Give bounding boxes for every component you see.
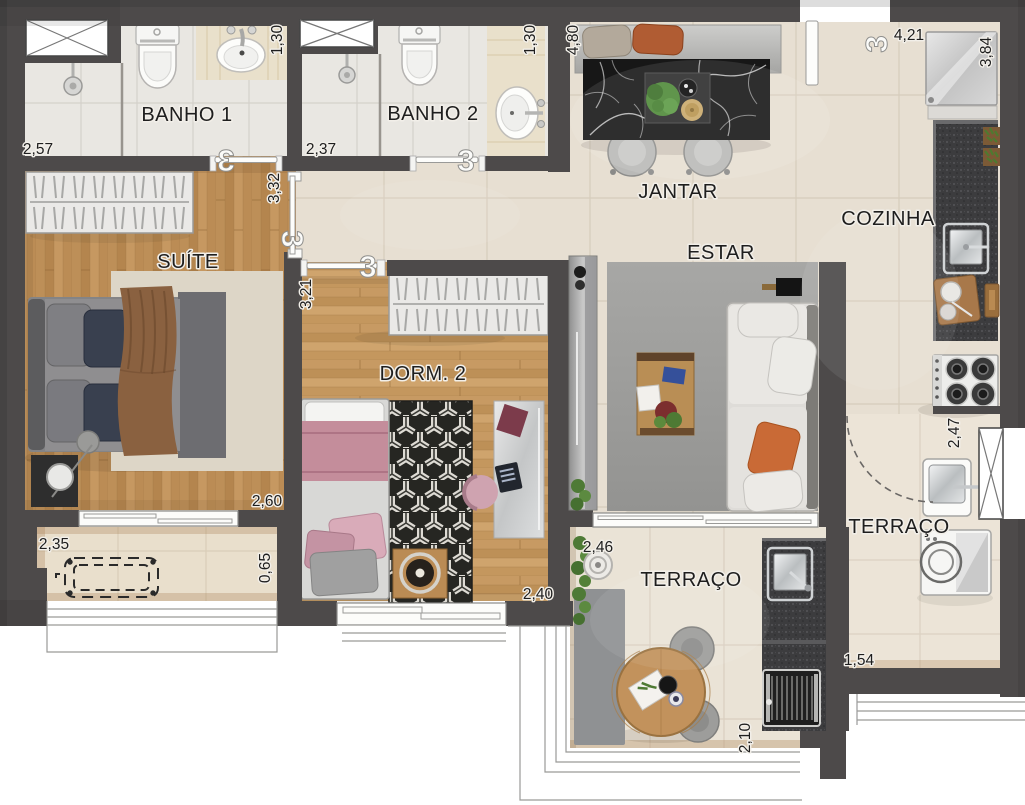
svg-text:SUÍTE: SUÍTE: [157, 250, 218, 273]
svg-text:2,46: 2,46: [583, 539, 613, 556]
svg-text:TERRAÇO: TERRAÇO: [640, 569, 741, 591]
svg-text:1,54: 1,54: [844, 652, 875, 669]
svg-text:4,80: 4,80: [565, 25, 582, 56]
svg-text:1,30: 1,30: [522, 25, 539, 56]
svg-text:TERRAÇO: TERRAÇO: [848, 516, 949, 538]
svg-text:2,47: 2,47: [946, 418, 963, 448]
svg-text:2,10: 2,10: [737, 723, 754, 754]
svg-text:JANTAR: JANTAR: [638, 181, 717, 203]
svg-text:0,65: 0,65: [257, 553, 274, 583]
svg-text:1,30: 1,30: [269, 25, 286, 56]
svg-text:2,60: 2,60: [252, 493, 283, 510]
svg-text:DORM. 2: DORM. 2: [380, 363, 467, 385]
svg-text:3,84: 3,84: [978, 37, 995, 68]
svg-text:3: 3: [217, 143, 234, 178]
svg-text:3: 3: [457, 143, 474, 178]
svg-text:4,21: 4,21: [894, 27, 924, 44]
svg-text:2,35: 2,35: [39, 536, 69, 553]
svg-text:2,57: 2,57: [23, 141, 53, 158]
svg-text:BANHO 1: BANHO 1: [141, 104, 232, 126]
svg-text:2,40: 2,40: [523, 586, 554, 603]
svg-text:3: 3: [859, 35, 894, 52]
svg-text:3: 3: [275, 230, 310, 247]
svg-text:2,37: 2,37: [306, 141, 336, 158]
svg-text:3: 3: [359, 249, 376, 284]
svg-text:3,32: 3,32: [266, 173, 283, 203]
svg-text:3,21: 3,21: [298, 279, 315, 309]
svg-text:COZINHA: COZINHA: [841, 208, 935, 230]
svg-text:ESTAR: ESTAR: [687, 242, 755, 264]
svg-text:BANHO 2: BANHO 2: [387, 103, 478, 125]
